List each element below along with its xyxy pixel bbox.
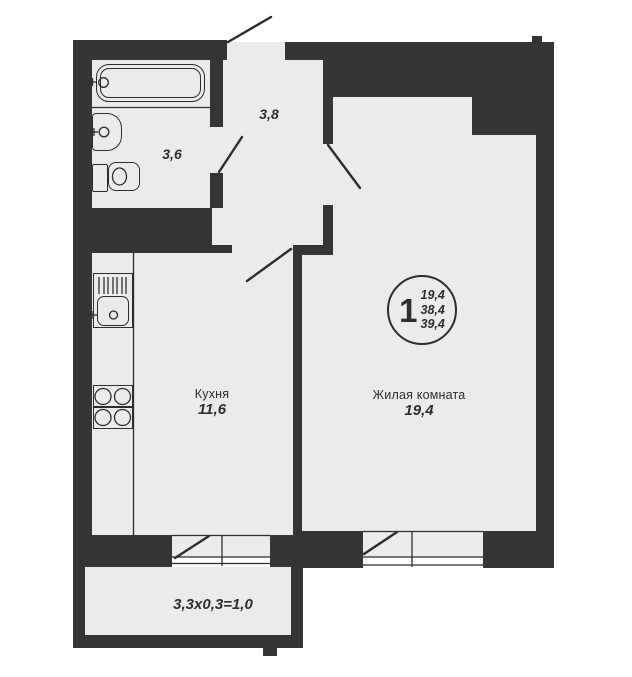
floor-entrance-opening xyxy=(227,42,285,60)
wall-niche-right xyxy=(472,60,536,135)
wall-hall-living-upper xyxy=(323,97,333,144)
floor-living-doorway xyxy=(323,144,333,205)
floor-bathroom-doorway xyxy=(210,127,223,173)
sink-icon xyxy=(92,113,122,151)
hallway-area-label: 3,8 xyxy=(239,106,299,122)
wall-top-living xyxy=(285,42,554,60)
wall-bottom-living-left xyxy=(302,531,363,568)
wall-left xyxy=(73,40,92,567)
living-window-glass xyxy=(363,557,483,568)
kitchen-sink-basin xyxy=(97,296,129,326)
wall-bottom-kitchen-left xyxy=(73,535,172,567)
wall-bathroom-bottom-strip xyxy=(73,245,232,253)
toilet-bowl xyxy=(108,162,140,191)
living-room-label: Жилая комната 19,4 xyxy=(339,388,499,420)
floorplan: 3,8 3,6 Кухня 11,6 Жилая комната 19,4 3,… xyxy=(0,0,632,677)
wall-right xyxy=(536,42,554,568)
wall-hall-living-stub xyxy=(323,205,333,245)
wall-bathroom-right-upper xyxy=(210,60,223,127)
kitchen-label: Кухня 11,6 xyxy=(162,387,262,419)
kitchen-window-glass xyxy=(172,557,270,567)
room-count: 1 xyxy=(399,294,417,327)
usable-area-value: 38,4 xyxy=(421,303,445,318)
wall-bathroom-bottom xyxy=(73,208,212,245)
kitchen-area: 11,6 xyxy=(162,401,262,418)
wall-balcony-bottom xyxy=(73,635,303,648)
floor-living-upper-right xyxy=(472,135,536,255)
living-room-area: 19,4 xyxy=(339,402,499,419)
living-room-name: Жилая комната xyxy=(339,388,499,402)
wall-balcony-stub xyxy=(263,648,277,656)
wall-top-bathroom xyxy=(73,40,227,60)
stove-lower xyxy=(93,406,133,429)
kitchen-name: Кухня xyxy=(162,387,262,401)
wall-bottom-living-right xyxy=(483,531,554,568)
bathroom-area-label: 3,6 xyxy=(142,146,202,162)
area-summary: 19,4 38,4 39,4 xyxy=(421,288,445,332)
floor-living-upper-left xyxy=(333,97,472,255)
wall-hall-corner-bar xyxy=(293,245,333,255)
entrance-door-swing xyxy=(228,17,271,42)
wall-bottom-kitchen-right xyxy=(270,535,302,567)
living-area-value: 19,4 xyxy=(421,288,445,303)
wall-niche-left xyxy=(323,60,472,97)
floor-hallway-notch xyxy=(212,208,232,245)
toilet-tank xyxy=(92,164,108,192)
stove-icon xyxy=(93,385,133,408)
bathtub-inner xyxy=(100,68,201,98)
floor-hallway xyxy=(223,60,323,245)
wall-kitchen-living-divider xyxy=(293,255,302,535)
total-area-value: 39,4 xyxy=(421,317,445,332)
wall-bathroom-right-stub xyxy=(210,173,223,208)
balcony-dimensions-label: 3,3x0,3=1,0 xyxy=(128,596,298,613)
apartment-summary-badge: 1 19,4 38,4 39,4 xyxy=(387,275,457,345)
